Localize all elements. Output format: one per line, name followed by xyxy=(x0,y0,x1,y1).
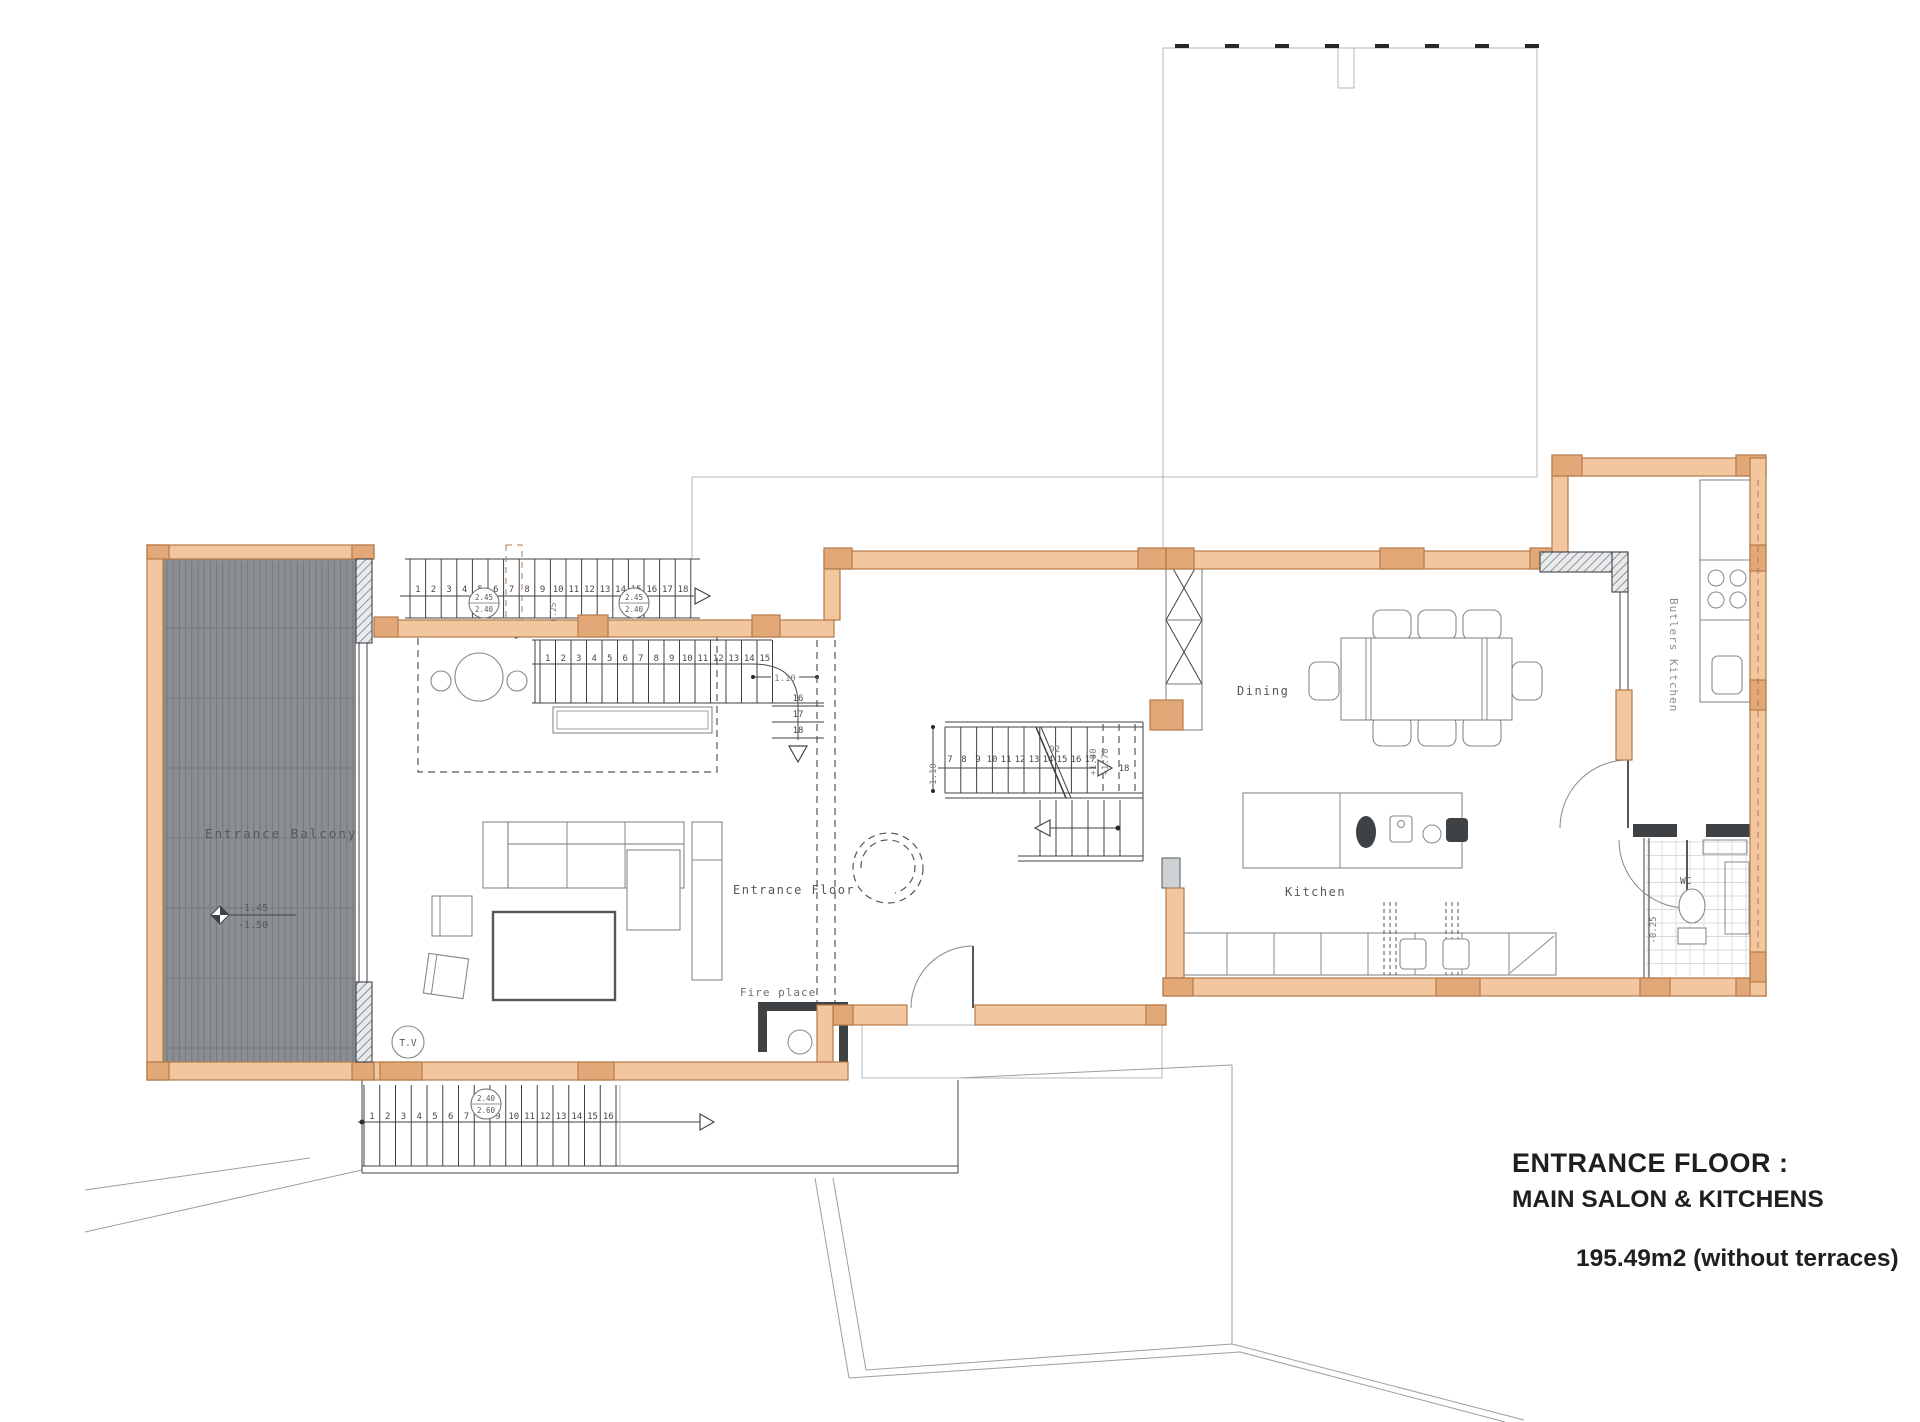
chair xyxy=(1463,610,1501,640)
wc-door-arc xyxy=(1619,840,1687,908)
tread-number: 10 xyxy=(682,654,693,664)
floor-plan-sheet: -1.45 -1.50 Entrance Balcony 12345678910… xyxy=(0,0,1920,1422)
center-stair-width-label: 1.10 xyxy=(929,763,939,785)
dim-dot xyxy=(751,675,755,679)
tread-number: 15 xyxy=(1057,755,1068,765)
title-line-2: MAIN SALON & KITCHENS xyxy=(1512,1186,1824,1213)
round-column-dashed xyxy=(853,833,923,903)
tread-number: 1 xyxy=(545,654,550,664)
stair-arrow-right xyxy=(695,588,710,604)
terrain-lines xyxy=(85,1025,1524,1422)
butlers-sink xyxy=(1712,656,1742,694)
island-sink xyxy=(1356,816,1376,848)
floor-plan-drawing: -1.45 -1.50 Entrance Balcony 12345678910… xyxy=(0,0,1920,1422)
wc-label: WC xyxy=(1680,876,1691,887)
front-door xyxy=(911,946,973,1008)
chimney-outline xyxy=(1338,48,1354,88)
tread-number: 10 xyxy=(553,585,564,595)
tread-number: 5 xyxy=(607,654,612,664)
tread-number: 12 xyxy=(540,1112,551,1122)
tread-number: 1 xyxy=(369,1112,374,1122)
chair xyxy=(1418,610,1456,640)
tread-number: 14 xyxy=(744,654,755,664)
tread-number: 2 xyxy=(561,654,566,664)
sofa-group xyxy=(423,822,722,1000)
center-stair-last-tread: 18 xyxy=(1119,764,1130,774)
title-area: 195.49m2 (without terraces) xyxy=(1576,1245,1899,1272)
wc-wall-segment xyxy=(1633,824,1677,837)
tread-number: 13 xyxy=(600,585,611,595)
tread-number: 14 xyxy=(571,1112,582,1122)
tread-number: 3 xyxy=(446,585,451,595)
tread-number: 10 xyxy=(508,1112,519,1122)
butlers-kitchen: Butlers Kitchen xyxy=(1560,480,1750,828)
balcony-level-bottom: -1.50 xyxy=(238,920,268,931)
tread-number: 3 xyxy=(576,654,581,664)
svg-text:2.40: 2.40 xyxy=(475,605,494,614)
dining-table-group xyxy=(1309,610,1542,746)
chaise xyxy=(627,850,680,930)
tread-number: 16 xyxy=(603,1112,614,1122)
central-stair: 7891011121314151617181.10.92+1.80+1.70 xyxy=(929,722,1143,861)
lower-stair-marker: 2.40 2.60 xyxy=(471,1089,501,1119)
tread-number: 12 xyxy=(584,585,595,595)
svg-text:2.40: 2.40 xyxy=(477,1094,496,1103)
roof-tick xyxy=(1475,44,1489,48)
svg-text:2.60: 2.60 xyxy=(477,1106,496,1115)
tread-number: 9 xyxy=(975,755,980,765)
entrance-hall xyxy=(853,833,973,1008)
tread-number: 6 xyxy=(623,654,628,664)
wc-room: WC -0.25 xyxy=(1619,824,1750,978)
tread-number: 15 xyxy=(759,654,770,664)
tread-number: 13 xyxy=(1029,755,1040,765)
kitchen-label: Kitchen xyxy=(1285,885,1346,899)
svg-text:2.40: 2.40 xyxy=(625,605,644,614)
tread-number: 11 xyxy=(697,654,708,664)
walk-dot xyxy=(1116,826,1121,831)
upper-stair-marker-1: 2.45 2.40 xyxy=(469,588,499,618)
svg-text:2.45: 2.45 xyxy=(475,593,493,602)
salon-stair-width-label: 1.10 xyxy=(774,674,796,684)
balcony-level-top: -1.45 xyxy=(238,903,268,914)
tread-number: 8 xyxy=(961,755,966,765)
lower-exterior-stair: 12345678910111213141516 xyxy=(358,1080,958,1173)
roof-tick xyxy=(1225,44,1239,48)
island-cooktop xyxy=(1446,818,1468,842)
entrance-balcony: -1.45 -1.50 Entrance Balcony xyxy=(163,559,357,1063)
tread-number: 13 xyxy=(556,1112,567,1122)
tread-number: 4 xyxy=(462,585,467,595)
oven xyxy=(1443,939,1469,969)
roof-tick xyxy=(1425,44,1439,48)
tread-number: 8 xyxy=(654,654,659,664)
roof-tick xyxy=(1275,44,1289,48)
coffee-table xyxy=(493,912,615,1000)
tread-number: 11 xyxy=(568,585,579,595)
tv-label: T.V xyxy=(399,1038,416,1049)
tread-number: 13 xyxy=(728,654,739,664)
tread-number: 14 xyxy=(1043,755,1054,765)
kitchen-island xyxy=(1243,793,1468,868)
round-table xyxy=(455,653,503,701)
title-line-1: ENTRANCE FLOOR : xyxy=(1512,1148,1788,1178)
toilet xyxy=(1679,889,1705,923)
dim-dot xyxy=(931,789,935,793)
stair-arrow-left xyxy=(1035,820,1050,836)
entrance-balcony-label: Entrance Balcony xyxy=(205,826,357,841)
stool xyxy=(507,671,527,691)
butlers-kitchen-label: Butlers Kitchen xyxy=(1667,598,1680,712)
tread-number: 4 xyxy=(417,1112,422,1122)
dim-dot xyxy=(931,725,935,729)
tread-number: 7 xyxy=(947,755,952,765)
roof-tick xyxy=(1525,44,1539,48)
chair xyxy=(1512,662,1542,700)
roof-outline xyxy=(692,44,1539,558)
upper-stair-marker-2: 2.45 2.40 xyxy=(619,588,649,618)
tread-number: 10 xyxy=(987,755,998,765)
dining-label: Dining xyxy=(1237,684,1289,698)
tread-number: 2 xyxy=(431,585,436,595)
tread-number: 7 xyxy=(464,1112,469,1122)
tread-number: 12 xyxy=(713,654,724,664)
tread-number: 8 xyxy=(524,585,529,595)
tread-number: 7 xyxy=(509,585,514,595)
tread-number: 3 xyxy=(401,1112,406,1122)
tread-number: 5 xyxy=(432,1112,437,1122)
concrete-column xyxy=(1162,858,1180,888)
landing-level-b: +1.70 xyxy=(1101,748,1111,775)
upper-stair-step-note: 0.25 xyxy=(549,602,558,621)
dining-table xyxy=(1341,638,1512,720)
roof-edge-ticks xyxy=(1175,44,1539,48)
tread-number: 2 xyxy=(385,1112,390,1122)
tread-number: 9 xyxy=(540,585,545,595)
fire-place-label: Fire place xyxy=(740,986,816,999)
entrance-floor-label: Entrance Floor xyxy=(733,883,855,897)
roof-tick xyxy=(1175,44,1189,48)
tread-number: 4 xyxy=(592,654,597,664)
wc-wall-segment xyxy=(1706,824,1750,837)
tread-number: 6 xyxy=(448,1112,453,1122)
roof-tick xyxy=(1325,44,1339,48)
kitchen-counter xyxy=(1180,902,1556,975)
landing-level-a: +1.80 xyxy=(1089,748,1099,775)
stool xyxy=(431,671,451,691)
tread-number: 7 xyxy=(638,654,643,664)
tread-number: 15 xyxy=(587,1112,598,1122)
title-block: ENTRANCE FLOOR : MAIN SALON & KITCHENS 1… xyxy=(1512,1148,1899,1272)
tread-number: 12 xyxy=(1015,755,1026,765)
wc-level-label: -0.25 xyxy=(1649,916,1659,943)
tread-number: 11 xyxy=(524,1112,535,1122)
tread-number: 9 xyxy=(669,654,674,664)
tread-number: 1 xyxy=(415,585,420,595)
salon-interior-stair: 1234567891011121314151617181.10 xyxy=(532,640,824,762)
stair-arrow-right xyxy=(700,1114,714,1130)
tread-number: 11 xyxy=(1001,755,1012,765)
tread-number: 17 xyxy=(662,585,673,595)
armchair xyxy=(432,896,472,936)
oven xyxy=(1400,939,1426,969)
stair-arrow-down xyxy=(789,746,807,762)
chair xyxy=(1309,662,1339,700)
chair xyxy=(1373,610,1411,640)
tread-number: 18 xyxy=(678,585,689,595)
armchair xyxy=(423,953,468,998)
svg-text:2.45: 2.45 xyxy=(625,593,643,602)
tread-number: 16 xyxy=(1071,755,1082,765)
tread-number: 16 xyxy=(646,585,657,595)
center-stair-note-label: .92 xyxy=(1044,745,1060,755)
roof-tick xyxy=(1375,44,1389,48)
